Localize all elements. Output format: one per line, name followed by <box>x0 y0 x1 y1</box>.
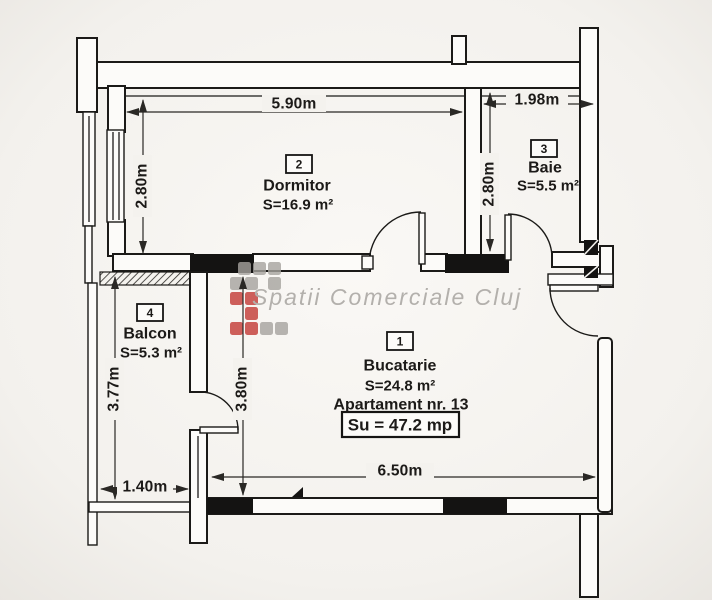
dim-balcon-width-label: 1.40m <box>123 479 168 496</box>
room-bucatarie-index: 1 <box>397 335 404 349</box>
window-dormitor <box>107 130 124 222</box>
wall-bottom-black-center <box>443 498 507 514</box>
room-dormitor-index: 2 <box>296 158 303 172</box>
dim-dormitor-height-label: 2.80m <box>134 164 151 209</box>
entrance-door-leaf <box>550 285 598 291</box>
wall-dormitor-baie-divider <box>465 88 481 256</box>
floor-plan-canvas: Spatii Comerciale Cluj 5.90m 1.98m 2.80m… <box>0 0 712 600</box>
wall-kitchen-left-upper <box>190 272 207 392</box>
room-baie-name: Baie <box>528 160 562 177</box>
room-balcon-name: Balcon <box>123 326 176 343</box>
wall-black-segment-center <box>445 254 509 273</box>
balcony-door-leaf <box>200 427 238 433</box>
dormitor-door-jamb <box>362 256 373 269</box>
wall-dormitor-left-upper <box>108 86 125 132</box>
total-area-label: Su = 47.2 mp <box>348 416 452 435</box>
room-bucatarie-area: S=24.8 m² <box>365 378 435 395</box>
wall-left-connector <box>85 226 92 283</box>
wall-right-lower <box>598 338 612 512</box>
wall-bottom-outer <box>207 498 612 514</box>
dormitor-door-leaf <box>419 213 425 264</box>
baie-door-leaf <box>505 215 511 260</box>
wall-dormitor-bottom-a <box>113 254 193 271</box>
room-baie-area: S=5.5 m² <box>517 178 579 195</box>
wall-top-outer <box>90 62 598 88</box>
room-bucatarie-name: Bucatarie <box>364 358 437 375</box>
room-dormitor-area: S=16.9 m² <box>263 197 333 214</box>
dim-balcon-height-label: 3.77m <box>106 367 123 412</box>
floor-plan: Spatii Comerciale Cluj 5.90m 1.98m 2.80m… <box>0 0 712 600</box>
wall-entrance-nub <box>548 274 613 285</box>
wall-stub-top-center <box>452 36 466 64</box>
room-baie-index: 3 <box>541 142 548 156</box>
room-dormitor-name: Dormitor <box>263 178 331 195</box>
wall-dormitor-left-lower <box>108 220 125 256</box>
balcony-rail-bottom <box>89 502 190 512</box>
wall-right-upper <box>580 28 598 242</box>
dim-baie-height-label: 2.80m <box>481 162 498 207</box>
room-balcon-index: 4 <box>147 306 154 320</box>
room-balcon-area: S=5.3 m² <box>120 345 182 362</box>
watermark-text: Spatii Comerciale Cluj <box>252 284 522 310</box>
dim-baie-width-label: 1.98m <box>515 92 560 109</box>
wall-stub-bottom-right <box>580 514 598 597</box>
dim-bucatarie-width-label: 6.50m <box>378 463 423 480</box>
wall-bottom-black-left <box>207 498 253 514</box>
dim-bucatarie-height-label: 3.80m <box>234 367 251 412</box>
dim-dormitor-width-label: 5.90m <box>272 96 317 113</box>
wall-stub-top-left <box>77 38 97 112</box>
